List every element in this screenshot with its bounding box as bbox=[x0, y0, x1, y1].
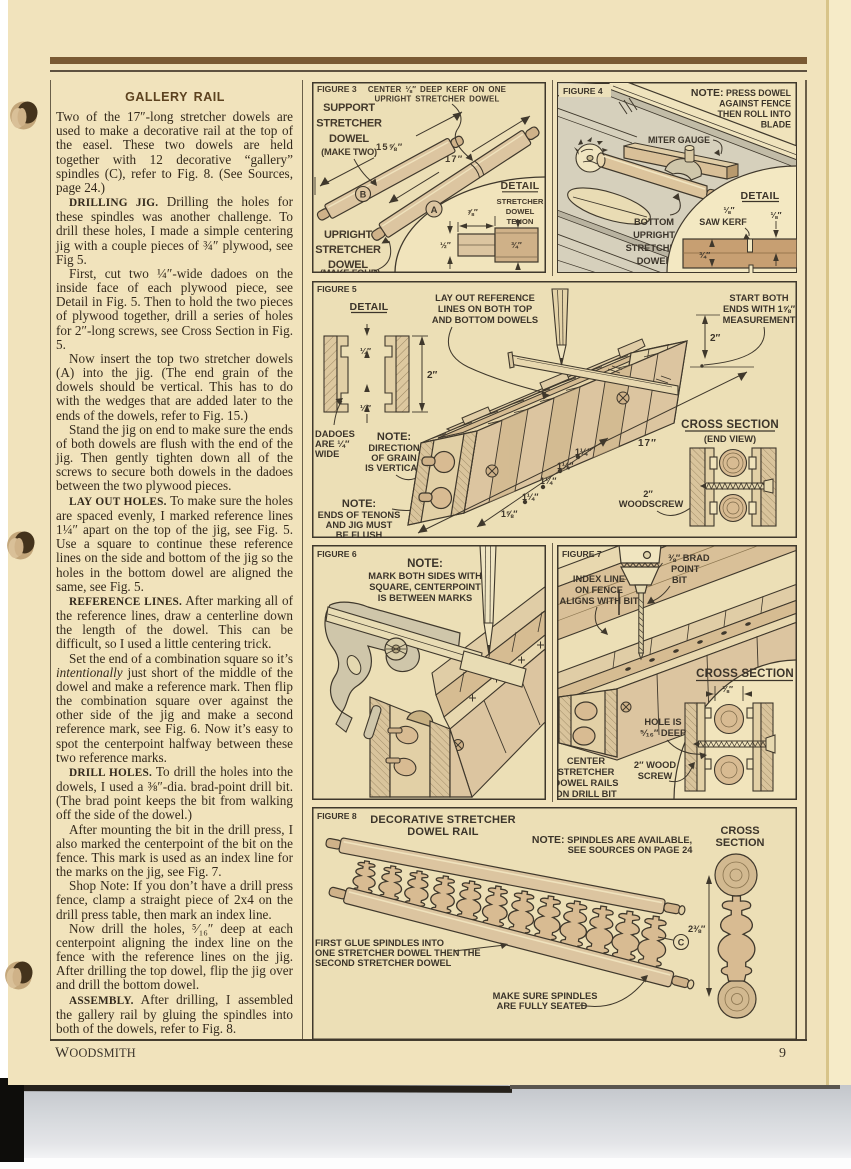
svg-text:WOODSCREW: WOODSCREW bbox=[619, 499, 684, 509]
svg-text:SECOND STRETCHER DOWEL: SECOND STRETCHER DOWEL bbox=[315, 958, 452, 968]
svg-text:START BOTH: START BOTH bbox=[729, 293, 789, 303]
svg-text:¾″: ¾″ bbox=[699, 250, 710, 260]
svg-text:ARE ¼″: ARE ¼″ bbox=[315, 439, 350, 449]
svg-text:FIGURE 4: FIGURE 4 bbox=[563, 86, 603, 96]
svg-text:¾″: ¾″ bbox=[511, 241, 522, 250]
svg-text:CENTER: CENTER bbox=[567, 756, 606, 766]
svg-text:17″: 17″ bbox=[638, 438, 657, 449]
svg-text:IS BETWEEN MARKS: IS BETWEEN MARKS bbox=[378, 593, 473, 603]
svg-text:FIGURE 5: FIGURE 5 bbox=[317, 284, 357, 294]
svg-text:CENTER ⅛″ DEEP KERF ON ONE: CENTER ⅛″ DEEP KERF ON ONE bbox=[368, 85, 506, 94]
svg-text:A: A bbox=[431, 205, 438, 216]
svg-text:2″ WOOD: 2″ WOOD bbox=[634, 760, 676, 770]
svg-text:THEN ROLL INTO: THEN ROLL INTO bbox=[718, 109, 792, 119]
svg-text:⁵⁄₁₆″ DEEP: ⁵⁄₁₆″ DEEP bbox=[640, 728, 686, 738]
svg-text:SQUARE, CENTERPOINT: SQUARE, CENTERPOINT bbox=[369, 582, 481, 592]
svg-text:⅜″: ⅜″ bbox=[722, 684, 733, 694]
svg-text:FIGURE 8: FIGURE 8 bbox=[317, 811, 357, 821]
svg-text:SCREW: SCREW bbox=[638, 771, 673, 781]
svg-text:IS VERTICAL: IS VERTICAL bbox=[365, 463, 423, 473]
svg-text:UPRIGHT: UPRIGHT bbox=[633, 230, 675, 240]
svg-text:BOTTOM: BOTTOM bbox=[634, 217, 674, 227]
svg-text:DOWEL RAIL: DOWEL RAIL bbox=[407, 826, 479, 838]
svg-text:DETAIL: DETAIL bbox=[501, 180, 540, 192]
svg-text:ONE STRETCHER DOWEL THEN THE: ONE STRETCHER DOWEL THEN THE bbox=[315, 948, 481, 958]
svg-text:⅛″: ⅛″ bbox=[770, 210, 781, 220]
svg-text:2⅜″: 2⅜″ bbox=[688, 924, 706, 934]
svg-text:NOTE:: NOTE: bbox=[377, 431, 411, 443]
svg-text:DETAIL: DETAIL bbox=[741, 190, 780, 202]
svg-text:MARK BOTH SIDES WITH: MARK BOTH SIDES WITH bbox=[368, 571, 482, 581]
svg-text:1¼″: 1¼″ bbox=[522, 492, 539, 502]
svg-text:AND JIG MUST: AND JIG MUST bbox=[326, 520, 393, 530]
svg-text:1¼″: 1¼″ bbox=[540, 476, 557, 486]
svg-text:DOWEL RAILS: DOWEL RAILS bbox=[557, 778, 618, 788]
svg-text:POINT: POINT bbox=[671, 564, 700, 574]
svg-text:FIGURE 6: FIGURE 6 bbox=[317, 549, 357, 559]
svg-text:1¼″: 1¼″ bbox=[575, 447, 592, 457]
svg-text:¼″: ¼″ bbox=[360, 346, 371, 356]
svg-text:DETAIL: DETAIL bbox=[350, 301, 389, 313]
svg-text:(MAKE TWO): (MAKE TWO) bbox=[321, 147, 377, 157]
svg-text:SEE SOURCES ON PAGE 24: SEE SOURCES ON PAGE 24 bbox=[568, 845, 694, 855]
svg-text:1¼″: 1¼″ bbox=[557, 461, 574, 471]
svg-text:DOWEL: DOWEL bbox=[637, 256, 672, 266]
svg-text:B: B bbox=[360, 190, 367, 200]
svg-text:FIGURE 3: FIGURE 3 bbox=[317, 84, 357, 94]
svg-text:C: C bbox=[678, 938, 685, 948]
svg-text:SECTION: SECTION bbox=[716, 837, 765, 849]
svg-text:⅜″ BRAD: ⅜″ BRAD bbox=[668, 553, 710, 563]
svg-text:BE FLUSH: BE FLUSH bbox=[336, 530, 383, 538]
svg-text:SUPPORT: SUPPORT bbox=[323, 102, 375, 114]
svg-text:LINES ON BOTH TOP: LINES ON BOTH TOP bbox=[438, 304, 532, 314]
svg-text:WIDE: WIDE bbox=[315, 449, 339, 459]
svg-text:HOLE IS: HOLE IS bbox=[644, 717, 681, 727]
svg-text:NOTE:: NOTE: bbox=[407, 558, 443, 570]
svg-text:DOWEL: DOWEL bbox=[506, 207, 535, 216]
svg-text:CROSS SECTION: CROSS SECTION bbox=[681, 419, 779, 431]
svg-text:⅛″: ⅛″ bbox=[723, 205, 734, 215]
svg-text:DECORATIVE STRETCHER: DECORATIVE STRETCHER bbox=[370, 814, 516, 826]
svg-text:2″: 2″ bbox=[643, 489, 653, 499]
svg-text:½″: ½″ bbox=[440, 241, 451, 250]
svg-text:MITER GAUGE: MITER GAUGE bbox=[648, 135, 710, 145]
svg-text:CROSS SECTION: CROSS SECTION bbox=[696, 668, 794, 680]
svg-text:FIGURE 7: FIGURE 7 bbox=[562, 549, 602, 559]
svg-text:2″: 2″ bbox=[710, 333, 721, 344]
svg-text:AGAINST FENCE: AGAINST FENCE bbox=[719, 99, 791, 109]
svg-text:¼″: ¼″ bbox=[360, 403, 371, 413]
svg-text:2″: 2″ bbox=[427, 370, 438, 381]
svg-text:ALIGNS WITH BIT: ALIGNS WITH BIT bbox=[559, 596, 638, 606]
svg-text:SAW KERF: SAW KERF bbox=[699, 217, 747, 227]
svg-text:1⅝″: 1⅝″ bbox=[501, 509, 518, 519]
svg-text:FIRST GLUE SPINDLES INTO: FIRST GLUE SPINDLES INTO bbox=[315, 938, 444, 948]
svg-text:(END VIEW): (END VIEW) bbox=[704, 434, 756, 444]
svg-text:STRETCHER: STRETCHER bbox=[558, 767, 615, 777]
svg-text:BLADE: BLADE bbox=[761, 120, 791, 130]
svg-text:DIRECTION: DIRECTION bbox=[368, 443, 419, 453]
svg-text:NOTE:: NOTE: bbox=[342, 498, 376, 510]
svg-text:AND BOTTOM DOWELS: AND BOTTOM DOWELS bbox=[432, 315, 538, 325]
svg-text:ENDS WITH 1⅝″: ENDS WITH 1⅝″ bbox=[723, 304, 796, 314]
svg-text:MAKE SURE SPINDLES: MAKE SURE SPINDLES bbox=[493, 991, 598, 1001]
svg-text:OF GRAIN: OF GRAIN bbox=[371, 453, 417, 463]
svg-text:ON DRILL BIT: ON DRILL BIT bbox=[557, 789, 617, 799]
svg-text:BIT: BIT bbox=[672, 575, 687, 585]
svg-text:STRETCHER: STRETCHER bbox=[316, 118, 382, 130]
svg-text:UPRIGHT STRETCHER DOWEL: UPRIGHT STRETCHER DOWEL bbox=[374, 95, 499, 104]
svg-text:ARE FULLY SEATED: ARE FULLY SEATED bbox=[497, 1001, 588, 1011]
svg-text:ON FENCE: ON FENCE bbox=[575, 585, 623, 595]
svg-text:⅞″: ⅞″ bbox=[467, 208, 478, 217]
svg-text:INDEX LINE: INDEX LINE bbox=[573, 574, 625, 584]
svg-text:ENDS OF TENONS: ENDS OF TENONS bbox=[318, 510, 401, 520]
svg-text:MEASUREMENT: MEASUREMENT bbox=[723, 315, 796, 325]
svg-text:CROSS: CROSS bbox=[720, 825, 759, 837]
svg-text:NOTE: PRESS DOWEL: NOTE: PRESS DOWEL bbox=[691, 87, 792, 99]
svg-text:UPRIGHT: UPRIGHT bbox=[324, 229, 373, 241]
svg-text:DADOES: DADOES bbox=[315, 429, 355, 439]
svg-text:STRETCHER: STRETCHER bbox=[497, 197, 544, 206]
svg-text:LAY OUT REFERENCE: LAY OUT REFERENCE bbox=[435, 293, 535, 303]
svg-text:(MAKE FOUR): (MAKE FOUR) bbox=[320, 268, 380, 273]
svg-text:DOWEL: DOWEL bbox=[329, 133, 369, 145]
svg-text:STRETCHER: STRETCHER bbox=[315, 244, 381, 256]
svg-text:15⅝″: 15⅝″ bbox=[376, 142, 403, 152]
